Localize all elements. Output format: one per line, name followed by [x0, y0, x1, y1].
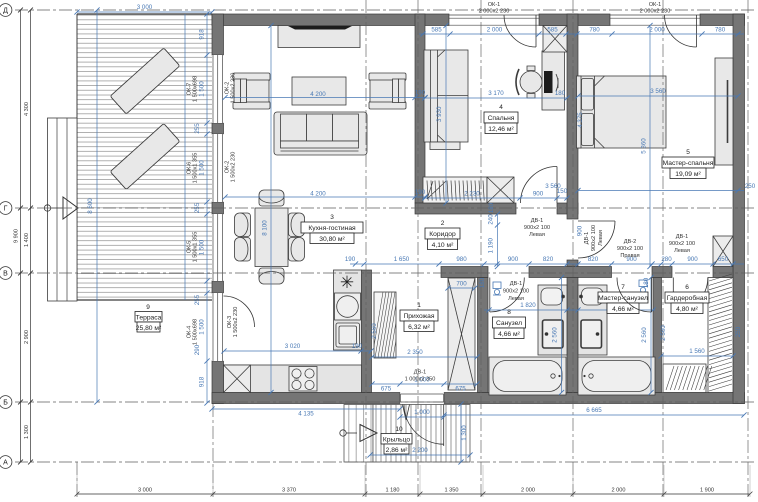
- svg-text:ДВ-1: ДВ-1: [584, 232, 590, 245]
- svg-text:3 020: 3 020: [285, 343, 301, 350]
- svg-text:900: 900: [508, 256, 519, 263]
- svg-text:190: 190: [352, 343, 363, 350]
- svg-text:1 300: 1 300: [461, 425, 468, 441]
- svg-text:1 500: 1 500: [199, 160, 206, 176]
- svg-text:1: 1: [417, 302, 421, 309]
- svg-text:900x2 100: 900x2 100: [669, 241, 695, 247]
- svg-text:Г: Г: [4, 206, 8, 213]
- svg-text:900x2 100: 900x2 100: [524, 225, 550, 231]
- svg-text:8: 8: [507, 309, 511, 316]
- svg-text:1 500: 1 500: [199, 239, 206, 255]
- svg-text:2 560: 2 560: [371, 323, 378, 339]
- svg-text:1 500x698: 1 500x698: [193, 76, 199, 102]
- svg-text:Крыльцо: Крыльцо: [383, 437, 411, 444]
- svg-text:1 500: 1 500: [199, 81, 206, 97]
- svg-text:6 665: 6 665: [586, 407, 602, 414]
- svg-text:1 300: 1 300: [24, 425, 30, 439]
- svg-text:820: 820: [543, 256, 554, 263]
- svg-text:12,46 м²: 12,46 м²: [488, 126, 514, 133]
- svg-text:4,66 м²: 4,66 м²: [612, 306, 634, 313]
- svg-text:Левая: Левая: [508, 296, 524, 302]
- svg-text:2,86 м²: 2,86 м²: [386, 447, 408, 454]
- svg-text:2 000x2 230: 2 000x2 230: [640, 9, 671, 15]
- svg-text:ДВ-1: ДВ-1: [414, 370, 427, 376]
- svg-text:8 100: 8 100: [262, 220, 269, 236]
- svg-text:240: 240: [488, 214, 495, 225]
- svg-text:3 560: 3 560: [650, 88, 666, 95]
- svg-text:1 500x1 355: 1 500x1 355: [193, 153, 199, 184]
- svg-text:180: 180: [479, 277, 486, 288]
- svg-text:Санузел: Санузел: [496, 320, 522, 327]
- svg-text:675: 675: [455, 386, 466, 393]
- svg-text:ОК-1: ОК-1: [488, 2, 501, 8]
- svg-text:Правая: Правая: [620, 253, 639, 259]
- svg-text:4 135: 4 135: [298, 411, 314, 418]
- svg-text:Д: Д: [3, 8, 8, 15]
- svg-text:900: 900: [533, 191, 544, 198]
- svg-text:25,80 м²: 25,80 м²: [136, 325, 162, 332]
- svg-text:190: 190: [415, 90, 426, 97]
- svg-text:3 000: 3 000: [138, 488, 152, 494]
- svg-text:3 930: 3 930: [436, 106, 443, 122]
- svg-text:9: 9: [146, 304, 150, 311]
- svg-text:7: 7: [621, 284, 625, 291]
- svg-text:Левая: Левая: [529, 232, 545, 238]
- svg-text:180: 180: [555, 90, 566, 97]
- svg-text:2 560: 2 560: [552, 327, 559, 343]
- svg-text:5 360: 5 360: [641, 138, 648, 154]
- svg-text:9 900: 9 900: [14, 229, 20, 243]
- svg-text:900x2 100: 900x2 100: [617, 246, 643, 252]
- svg-text:2 350: 2 350: [407, 349, 423, 356]
- svg-text:8 600: 8 600: [87, 198, 94, 214]
- svg-text:19,09 м²: 19,09 м²: [675, 171, 701, 178]
- svg-text:А: А: [3, 460, 8, 467]
- svg-text:780: 780: [715, 26, 726, 33]
- svg-text:Спальня: Спальня: [488, 115, 515, 122]
- svg-text:1 500x1 355: 1 500x1 355: [193, 232, 199, 263]
- svg-text:3: 3: [330, 214, 334, 221]
- svg-text:2 560: 2 560: [641, 327, 648, 343]
- svg-text:190: 190: [345, 256, 356, 263]
- svg-text:Левая: Левая: [674, 248, 690, 254]
- svg-text:900: 900: [577, 225, 584, 236]
- svg-text:1 350: 1 350: [445, 488, 459, 494]
- svg-text:1 560: 1 560: [689, 348, 705, 355]
- svg-text:Коридор: Коридор: [429, 231, 456, 238]
- svg-text:4: 4: [499, 104, 503, 111]
- svg-text:4 300: 4 300: [24, 102, 30, 116]
- svg-text:ОК-1: ОК-1: [649, 2, 662, 8]
- svg-text:150: 150: [557, 188, 568, 195]
- svg-text:1 000x2 350: 1 000x2 350: [405, 377, 436, 383]
- svg-text:2 000: 2 000: [649, 26, 665, 33]
- svg-text:675: 675: [381, 386, 392, 393]
- svg-text:900x2 100: 900x2 100: [591, 225, 597, 251]
- svg-text:585: 585: [547, 26, 558, 33]
- svg-text:Кухня-гостиная: Кухня-гостиная: [308, 225, 356, 232]
- svg-text:Мастер-спальня: Мастер-спальня: [663, 160, 714, 167]
- svg-text:5: 5: [686, 149, 690, 156]
- svg-text:1 000: 1 000: [414, 409, 430, 416]
- svg-text:2 560: 2 560: [660, 325, 667, 341]
- svg-text:255: 255: [194, 123, 201, 134]
- svg-text:4,10 м²: 4,10 м²: [432, 242, 454, 249]
- svg-text:180: 180: [488, 202, 495, 213]
- svg-text:1 500x698: 1 500x698: [193, 319, 199, 345]
- svg-text:1 190: 1 190: [488, 237, 495, 253]
- svg-text:4,80 м²: 4,80 м²: [676, 306, 698, 313]
- svg-text:1 500x2 230: 1 500x2 230: [233, 307, 239, 338]
- svg-text:650: 650: [718, 256, 729, 263]
- svg-text:30,80 м²: 30,80 м²: [319, 236, 345, 243]
- svg-text:Мастер-санузел: Мастер-санузел: [598, 295, 648, 302]
- svg-text:918: 918: [199, 376, 206, 387]
- svg-text:4,66 м²: 4,66 м²: [498, 331, 520, 338]
- svg-text:Гардеробная: Гардеробная: [667, 294, 708, 302]
- svg-text:В: В: [3, 271, 8, 278]
- svg-text:1 500x2 230: 1 500x2 230: [231, 152, 237, 183]
- svg-text:ДВ-1: ДВ-1: [531, 218, 544, 224]
- svg-text:190: 190: [415, 189, 426, 196]
- svg-text:10: 10: [395, 426, 403, 433]
- svg-text:820: 820: [588, 256, 599, 263]
- svg-text:6,32 м²: 6,32 м²: [408, 324, 430, 331]
- svg-text:Терраса: Терраса: [136, 315, 162, 322]
- svg-text:1 900: 1 900: [700, 488, 714, 494]
- svg-text:1 820: 1 820: [520, 302, 536, 309]
- svg-text:4 375: 4 375: [577, 112, 584, 128]
- svg-text:4 200: 4 200: [310, 91, 326, 98]
- svg-text:Прихожая: Прихожая: [404, 313, 435, 320]
- svg-text:1 650: 1 650: [394, 256, 410, 263]
- svg-text:2 000: 2 000: [521, 488, 535, 494]
- svg-text:250: 250: [735, 326, 742, 337]
- svg-text:900: 900: [687, 256, 698, 263]
- svg-text:Б: Б: [3, 400, 8, 407]
- svg-text:6: 6: [685, 284, 689, 291]
- svg-text:Левая: Левая: [598, 230, 604, 246]
- svg-text:3 370: 3 370: [282, 488, 296, 494]
- svg-text:3 000: 3 000: [137, 4, 153, 11]
- svg-text:280: 280: [661, 256, 672, 263]
- svg-text:585: 585: [431, 26, 442, 33]
- svg-text:2 200: 2 200: [412, 447, 428, 454]
- svg-text:700: 700: [456, 280, 467, 287]
- svg-text:2 000: 2 000: [612, 488, 626, 494]
- svg-text:1 400: 1 400: [24, 233, 30, 247]
- svg-text:1 500x2 230: 1 500x2 230: [231, 73, 237, 104]
- svg-text:ДВ-1: ДВ-1: [676, 234, 689, 240]
- svg-text:2: 2: [441, 220, 445, 227]
- svg-text:4 200: 4 200: [310, 191, 326, 198]
- svg-text:1 180: 1 180: [386, 488, 400, 494]
- svg-text:2 900: 2 900: [24, 330, 30, 344]
- svg-text:2 230: 2 230: [464, 191, 480, 198]
- svg-text:255: 255: [194, 294, 201, 305]
- svg-text:900x2 100: 900x2 100: [503, 289, 529, 295]
- svg-text:250: 250: [745, 183, 756, 190]
- svg-text:2 000: 2 000: [487, 26, 503, 33]
- svg-text:ДВ-1: ДВ-1: [510, 281, 523, 287]
- svg-text:918: 918: [199, 29, 206, 40]
- svg-text:ДВ-2: ДВ-2: [624, 239, 637, 245]
- svg-text:780: 780: [589, 26, 600, 33]
- svg-text:3 170: 3 170: [488, 90, 504, 97]
- svg-text:✳: ✳: [340, 273, 354, 292]
- svg-text:1 500: 1 500: [199, 319, 206, 335]
- svg-text:255: 255: [194, 202, 201, 213]
- svg-text:980: 980: [456, 256, 467, 263]
- svg-text:2 000x2 230: 2 000x2 230: [479, 9, 510, 15]
